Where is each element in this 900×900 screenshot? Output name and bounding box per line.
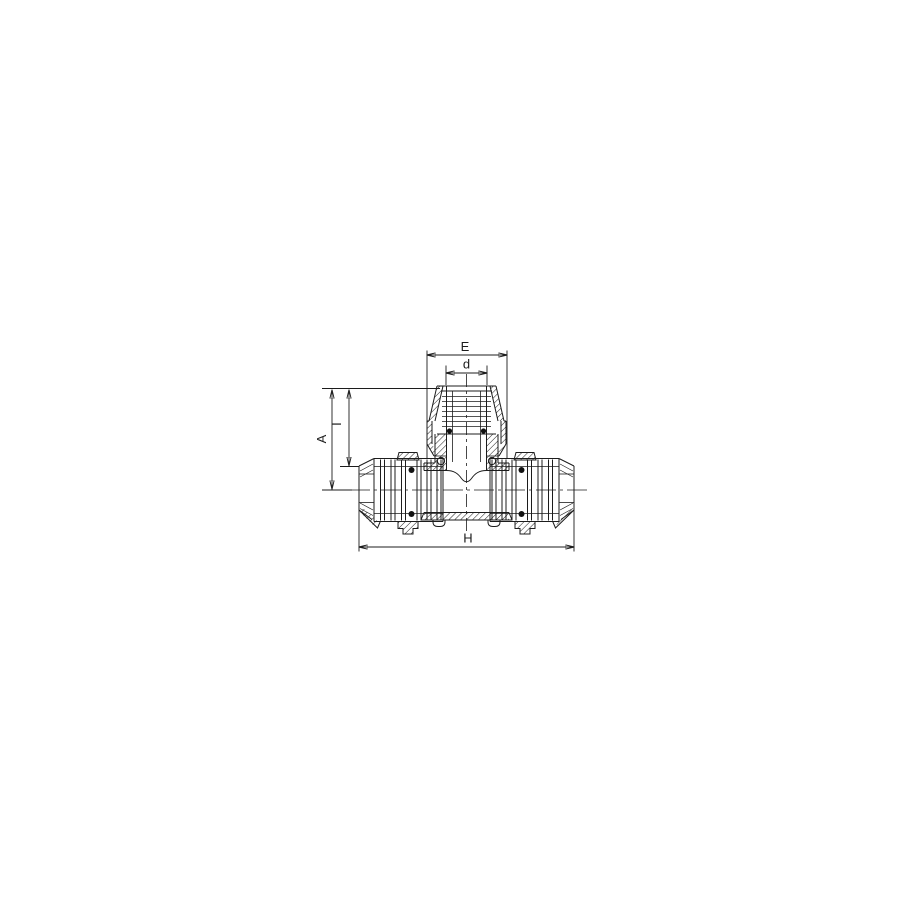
right-end-cap bbox=[553, 459, 575, 529]
right-oring-bottom bbox=[519, 511, 525, 517]
dimension-d-label: d bbox=[463, 357, 470, 372]
page: E d A I H bbox=[0, 0, 900, 900]
dimension-I: I bbox=[329, 390, 359, 467]
dimension-E-label: E bbox=[461, 339, 470, 354]
right-nut-bottom-tab bbox=[515, 522, 535, 535]
branch-oring-left bbox=[447, 428, 452, 433]
tee-fitting-technical-drawing: E d A I H bbox=[0, 0, 900, 900]
left-oring-top bbox=[409, 467, 415, 473]
left-nut-bottom-tab bbox=[398, 522, 418, 535]
dimension-H-label: H bbox=[463, 531, 472, 546]
right-oring-top bbox=[519, 467, 525, 473]
left-end-cap bbox=[359, 459, 381, 529]
dimension-A-label: A bbox=[314, 434, 329, 443]
dimension-I-label: I bbox=[329, 422, 344, 426]
center-lines bbox=[350, 374, 589, 531]
left-oring-bottom bbox=[409, 511, 415, 517]
branch-oring-right bbox=[481, 428, 486, 433]
